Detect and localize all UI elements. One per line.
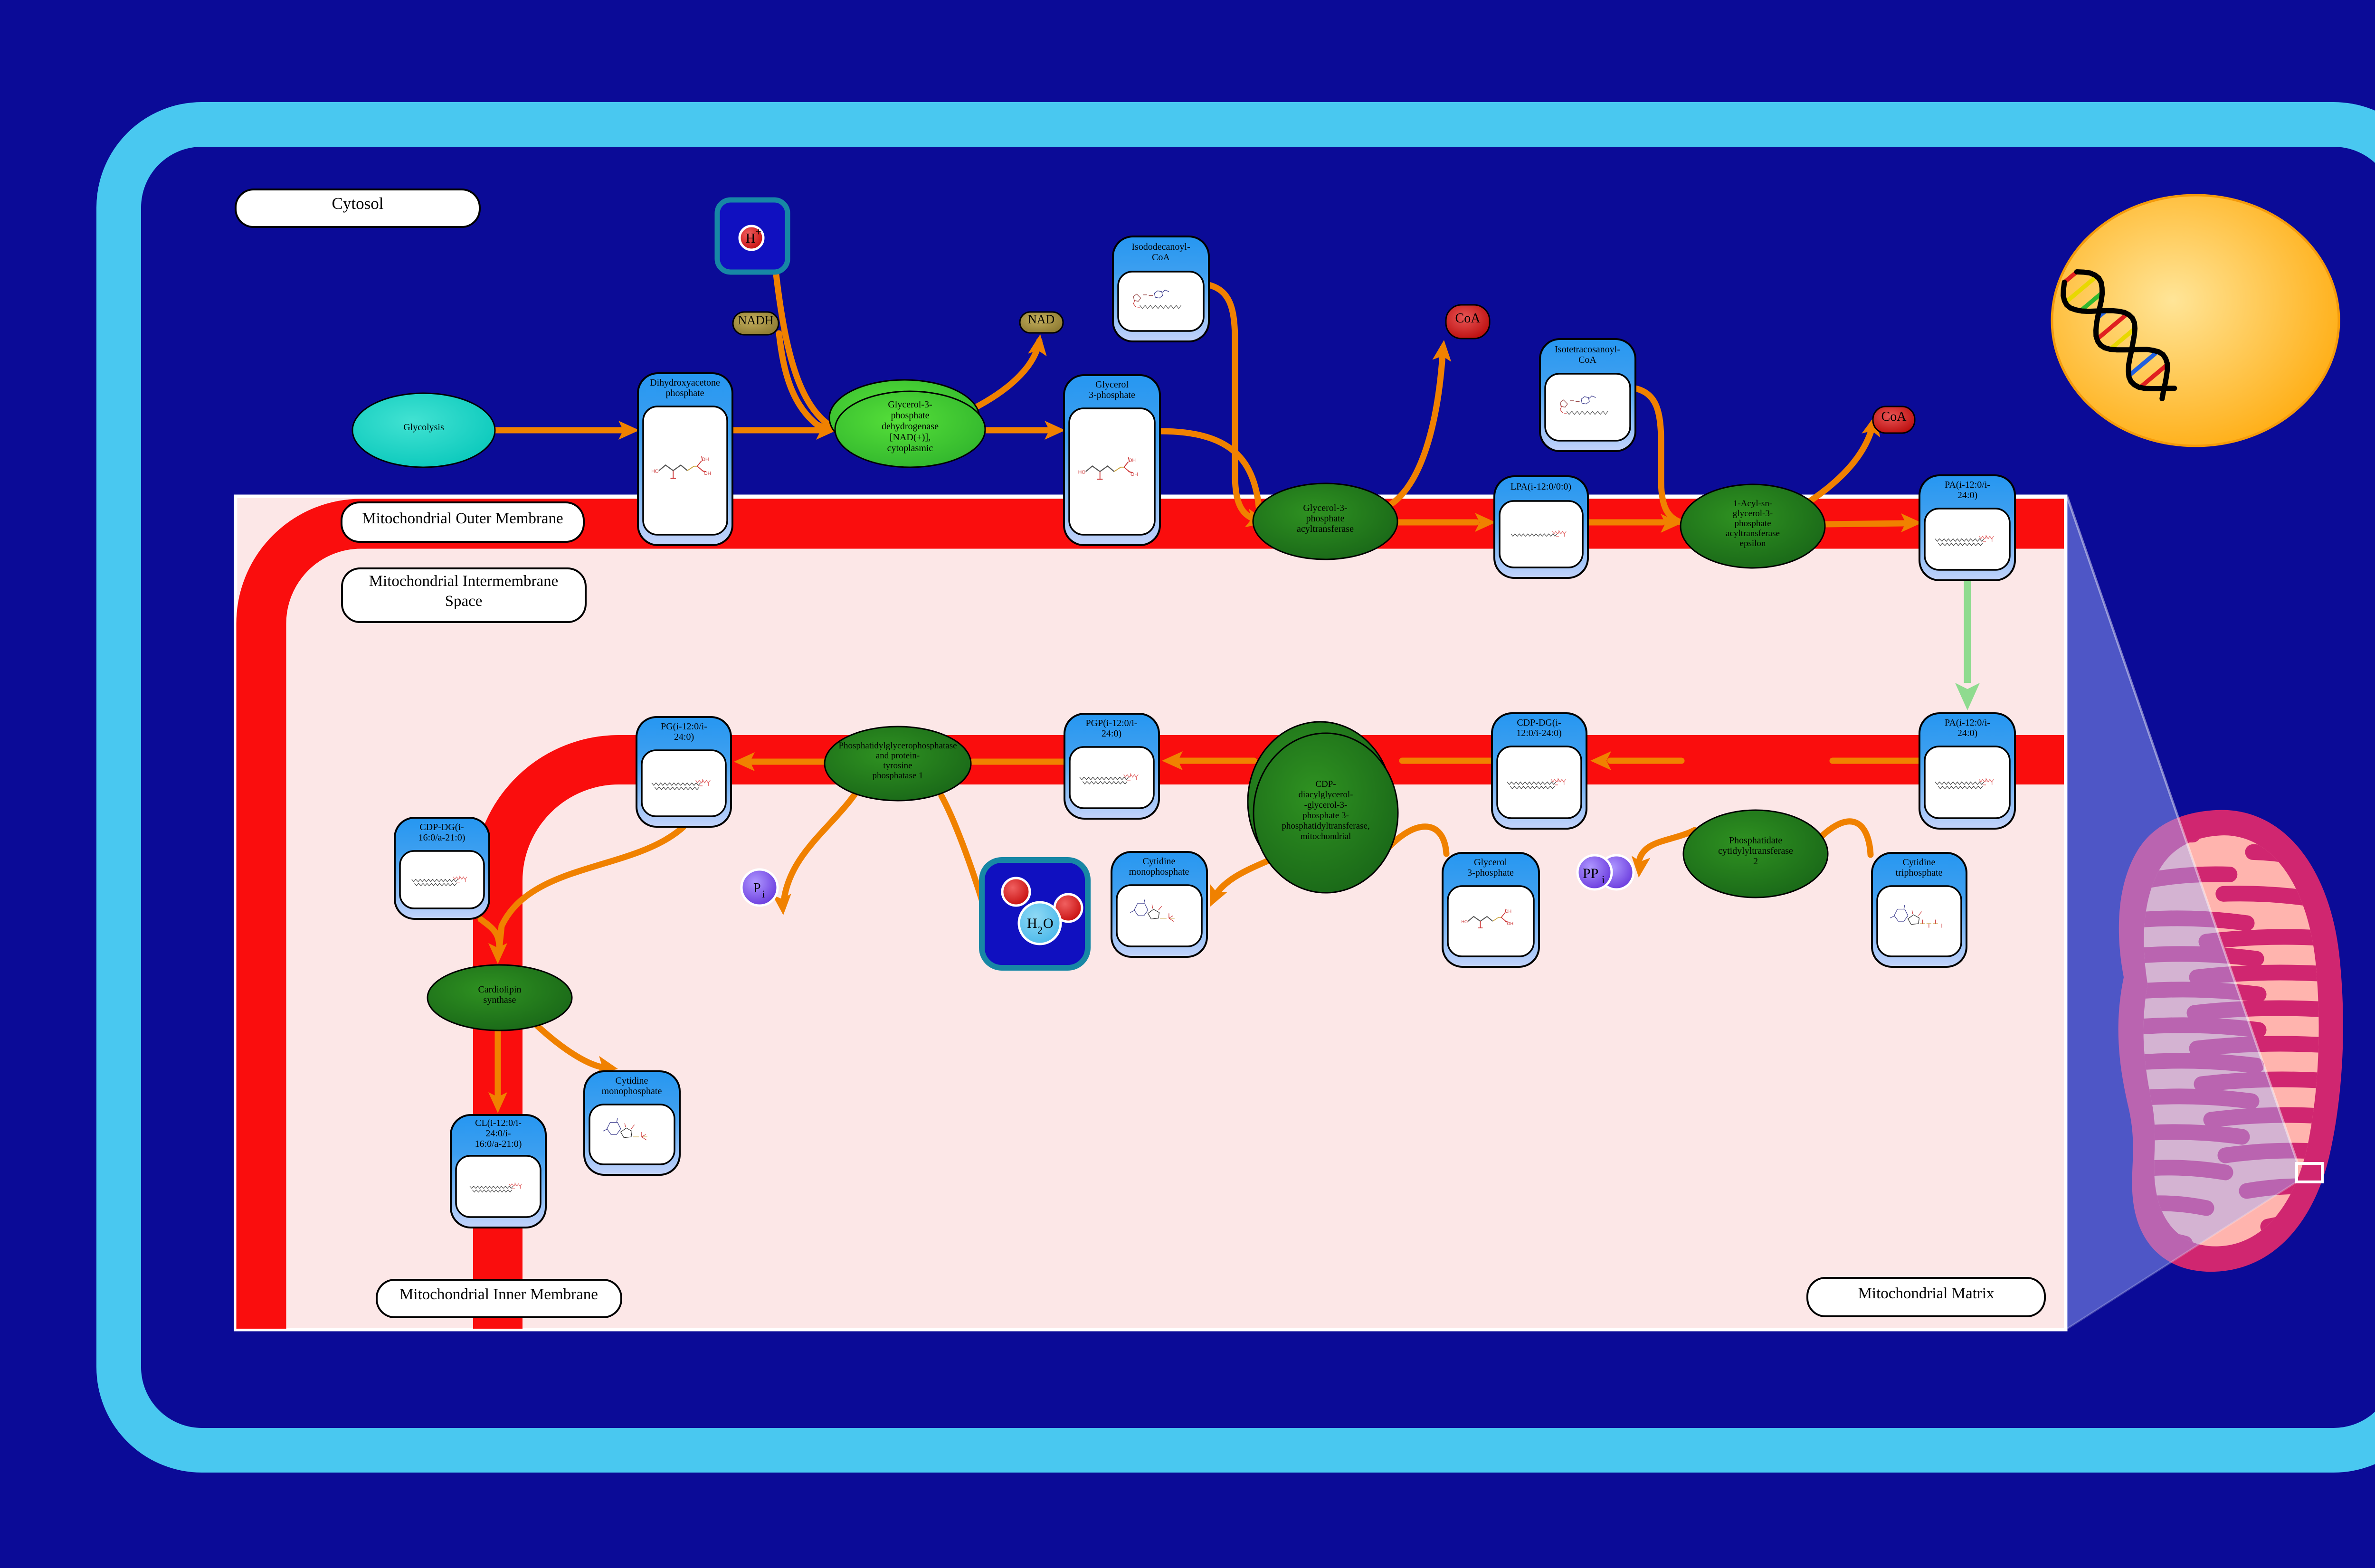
svg-text:NADH: NADH — [738, 313, 773, 327]
svg-text:Glycolysis: Glycolysis — [403, 422, 444, 433]
svg-text:Glycerol-3-phosphatedehydrogen: Glycerol-3-phosphatedehydrogenase[NAD(+)… — [882, 399, 939, 453]
svg-text:HO: HO — [1078, 470, 1086, 475]
svg-text:CDP-DG(i-12:0/i-24:0): CDP-DG(i-12:0/i-24:0) — [1516, 718, 1562, 738]
svg-text:Glycerol3-phosphate: Glycerol3-phosphate — [1467, 857, 1514, 878]
svg-text:Cytosol: Cytosol — [332, 194, 384, 213]
svg-text:2: 2 — [1037, 924, 1043, 936]
svg-text:CoA: CoA — [1881, 409, 1907, 424]
svg-text:H: H — [746, 231, 755, 246]
svg-text:OH: OH — [1129, 458, 1136, 463]
svg-text:i: i — [762, 888, 765, 900]
svg-text:O: O — [1043, 916, 1054, 931]
svg-text:Mitochondrial Matrix: Mitochondrial Matrix — [1858, 1285, 1995, 1302]
svg-text:NAD: NAD — [1028, 312, 1054, 326]
svg-text:H: H — [1027, 916, 1037, 931]
svg-text:P: P — [753, 881, 761, 896]
svg-text:Mitochondrial Outer Membrane: Mitochondrial Outer Membrane — [362, 510, 563, 527]
svg-text:Cardiolipinsynthase: Cardiolipinsynthase — [478, 984, 521, 1005]
svg-text:HO: HO — [651, 469, 659, 474]
svg-text:OH: OH — [702, 457, 709, 462]
svg-text:OH: OH — [1505, 909, 1512, 914]
svg-text:CDP-DG(i-16:0/a-21:0): CDP-DG(i-16:0/a-21:0) — [418, 822, 465, 843]
svg-text:PP: PP — [1583, 866, 1598, 881]
svg-text:Glycerol3-phosphate: Glycerol3-phosphate — [1089, 379, 1135, 400]
svg-text:OH: OH — [1130, 472, 1138, 477]
svg-text:HO: HO — [1462, 919, 1468, 924]
svg-text:+: + — [755, 226, 762, 238]
svg-text:Mitochondrial Inner Membrane: Mitochondrial Inner Membrane — [399, 1286, 598, 1303]
svg-text:i: i — [1602, 874, 1605, 886]
svg-text:CoA: CoA — [1455, 311, 1481, 326]
svg-text:LPA(i-12:0/0:0): LPA(i-12:0/0:0) — [1510, 482, 1571, 492]
svg-text:OH: OH — [704, 471, 712, 476]
svg-text:OH: OH — [1507, 921, 1514, 926]
